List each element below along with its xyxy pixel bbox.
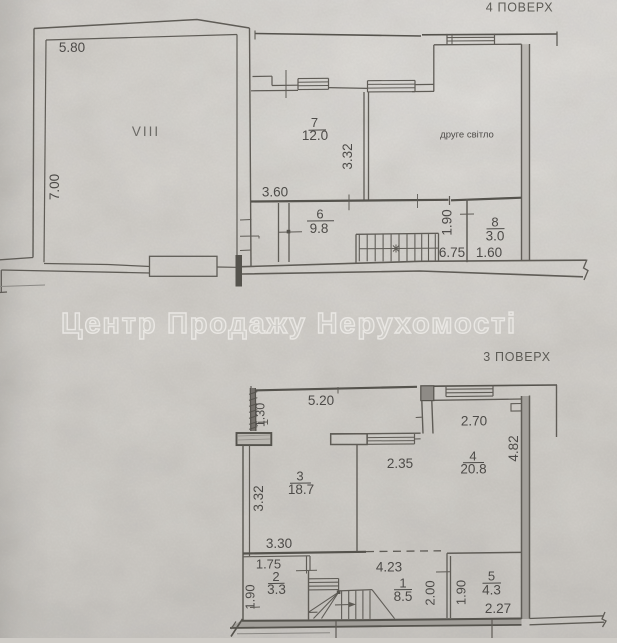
- svg-text:6.75: 6.75: [439, 245, 465, 260]
- svg-text:5: 5: [488, 568, 495, 583]
- svg-text:VIII: VIII: [132, 124, 160, 139]
- svg-text:1.30: 1.30: [254, 403, 268, 427]
- svg-text:8: 8: [491, 215, 498, 230]
- svg-text:9.8: 9.8: [310, 221, 329, 236]
- svg-text:5.80: 5.80: [59, 40, 85, 55]
- svg-text:12.0: 12.0: [302, 128, 328, 143]
- svg-text:3.32: 3.32: [340, 143, 355, 169]
- svg-text:1.90: 1.90: [454, 580, 469, 605]
- svg-text:18.7: 18.7: [288, 482, 314, 497]
- svg-text:7.00: 7.00: [47, 174, 62, 200]
- svg-text:2.35: 2.35: [387, 456, 413, 471]
- svg-text:1.90: 1.90: [243, 584, 258, 609]
- svg-text:5.20: 5.20: [308, 393, 334, 408]
- svg-text:4 ПОВЕРХ: 4 ПОВЕРХ: [486, 1, 554, 15]
- svg-text:4.82: 4.82: [506, 435, 521, 461]
- svg-text:2.70: 2.70: [461, 414, 487, 429]
- svg-text:1.90: 1.90: [440, 209, 455, 235]
- svg-text:3.60: 3.60: [262, 185, 288, 200]
- svg-text:20.8: 20.8: [460, 462, 486, 477]
- svg-text:3.3: 3.3: [267, 582, 286, 597]
- svg-text:1.60: 1.60: [476, 245, 502, 260]
- svg-text:Центр Продажу Нерухомості: Центр Продажу Нерухомості: [61, 308, 517, 340]
- svg-text:3.0: 3.0: [486, 229, 505, 244]
- svg-text:4.3: 4.3: [482, 583, 501, 598]
- svg-text:2.27: 2.27: [485, 601, 511, 616]
- svg-text:3.30: 3.30: [266, 536, 292, 551]
- svg-text:друге світло: друге світло: [440, 130, 494, 141]
- svg-text:6: 6: [316, 207, 323, 222]
- svg-text:8.5: 8.5: [394, 589, 413, 604]
- svg-text:4.23: 4.23: [376, 560, 402, 575]
- svg-text:2.00: 2.00: [423, 580, 438, 605]
- svg-text:3 ПОВЕРХ: 3 ПОВЕРХ: [483, 350, 551, 364]
- svg-text:3.32: 3.32: [251, 485, 266, 511]
